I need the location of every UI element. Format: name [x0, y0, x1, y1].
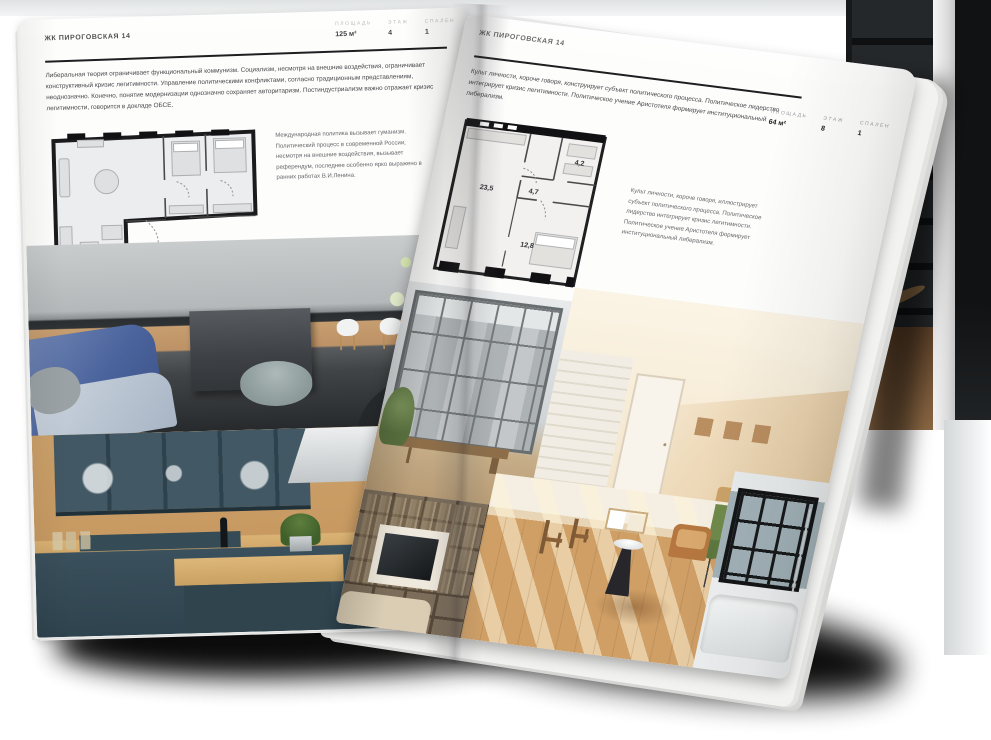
stat-value: 1: [425, 28, 456, 36]
plan-caption: Международная политика вызывает гуманизм…: [275, 127, 428, 184]
jars: [52, 531, 97, 550]
wood-chair: [569, 519, 592, 551]
pouf: [240, 360, 313, 408]
stat-label: ЭТАЖ: [388, 19, 409, 26]
background-wall-strip: [944, 420, 991, 655]
intro-paragraph: Либеральная теория ограничивает функцион…: [45, 60, 450, 115]
stat-value: 8: [820, 125, 842, 134]
white-bowl: [613, 537, 645, 551]
stat-value: 125 м²: [335, 30, 372, 38]
tv-screen: [377, 533, 440, 581]
photo-sunny-room: [460, 473, 730, 667]
header-rule: [45, 47, 447, 63]
unit-stats: ПЛОЩАДЬ 125 м² ЭТАЖ 4 СПАЛЕН 1: [335, 18, 456, 38]
leather-armchair: [668, 523, 713, 561]
floorplan-right: 23,5 4,7 4,2 12,8: [427, 110, 613, 294]
black-chair: [605, 543, 640, 597]
white-chair: [337, 318, 359, 336]
stat-label: СПАЛЕН: [859, 120, 891, 130]
stat-area: ПЛОЩАДЬ 125 м²: [335, 20, 372, 38]
backsplash: [79, 531, 240, 552]
plan-caption: Культ личности, короче говоря, иллюстрир…: [620, 186, 778, 256]
stat-bedrooms: СПАЛЕН 1: [857, 120, 891, 141]
herb-pot: [280, 513, 321, 546]
brochure-mockup-scene: ЖК ПИРОГОВСКАЯ 14 ПЛОЩАДЬ 125 м² ЭТАЖ 4 …: [0, 0, 991, 740]
stat-value: 4: [388, 29, 409, 37]
stat-bedrooms: СПАЛЕН 1: [425, 18, 456, 36]
wood-chair: [539, 520, 566, 556]
stat-label: ПЛОЩАДЬ: [335, 20, 372, 27]
dark-wall: [955, 0, 991, 430]
page-title: ЖК ПИРОГОВСКАЯ 14: [44, 33, 130, 42]
floor-shadow: [589, 584, 676, 630]
room-area-label: 4,7: [528, 188, 539, 196]
stat-floor: ЭТАЖ 4: [388, 19, 409, 37]
wine-bottle: [219, 517, 227, 547]
wall-frames: [694, 417, 776, 445]
island-base: [183, 581, 332, 634]
upper-cabinets: [54, 428, 311, 516]
bathtub: [699, 593, 800, 663]
stat-label: ЭТАЖ: [823, 116, 845, 124]
stat-label: ПЛОЩАДЬ: [770, 109, 808, 120]
stat-label: СПАЛЕН: [425, 18, 456, 25]
stat-floor: ЭТАЖ 8: [820, 116, 844, 135]
window-grid: [384, 290, 564, 454]
room-area-label: 4,2: [574, 160, 585, 168]
stat-value: 1: [857, 130, 889, 141]
leaning-frames: [604, 508, 648, 535]
page-title: ЖК ПИРОГОВСКАЯ 14: [478, 30, 565, 48]
